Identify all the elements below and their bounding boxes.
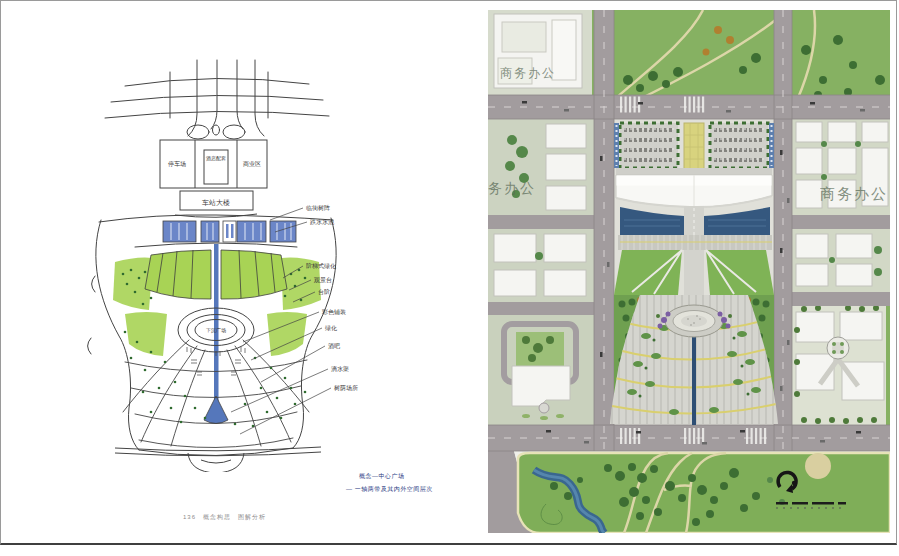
plaza-water-axis [692,335,696,425]
terrace-steps [618,235,772,250]
zone-label-hotel: 酒店配套 [206,155,226,162]
label-business-office-left: 商务办公 [488,180,536,196]
top-road [105,60,329,139]
annotation-label: 台阶 [318,288,330,296]
lawn-panels [614,250,774,295]
annotation-label: 绿化 [325,325,337,332]
annotation-label: 彩色铺装 [321,309,346,315]
clearing [805,453,831,479]
right-middle-block [792,229,890,292]
zone-label-parking: 停车场 [168,160,186,168]
left-middle-block [488,229,594,302]
zone-label-main-building: 车站大楼 [202,199,230,207]
annotation-label: 观景台 [313,277,332,284]
top-left-block [488,10,592,95]
annotation-label: 树荫场所 [334,385,358,392]
main-hall-building [616,175,772,207]
right-lower-block [792,305,890,425]
annotation-label: 滴水渠 [331,365,349,372]
concept-caption-line1: 概念—中心广场 [346,470,496,483]
central-courtyard [684,123,704,170]
south-park [518,453,890,533]
annotation-label: 临街树阵 [306,204,330,212]
left-upper-block [488,119,594,215]
label-business-office-right: 商务办公 [820,185,888,202]
concept-sketch-figure: 停车场 酒店配套 商业区 车站大楼 下沉广场 [85,52,425,472]
concept-caption: 概念—中心广场 — 一轴两带及其内外空间层次 [346,470,496,496]
concept-sketch: 停车场 酒店配套 商业区 车站大楼 下沉广场 [85,52,425,472]
zone-label-sunken-plaza: 下沉广场 [206,327,226,334]
zone-label-commerce: 商业区 [243,160,261,167]
annotation-label: 酒吧 [328,343,340,350]
entry-strip [616,168,772,175]
water-pond-triangle [204,396,228,424]
left-lower-block [488,315,594,425]
top-right-park [592,10,890,100]
footer-caption: 136 概念构思 图解分析 [183,513,266,522]
label-business-office-top-left: 商务办公 [500,66,556,80]
annotation-label: 阶梯式绿化 [306,262,336,270]
concept-caption-line2: — 一轴两带及其内外空间层次 [346,486,433,492]
master-plan-figure: 商务办公 商务办公 商务办公 [488,10,890,533]
master-plan: 商务办公 商务办公 商务办公 [488,10,890,533]
annotation-label: 跌水水池 [310,219,334,226]
